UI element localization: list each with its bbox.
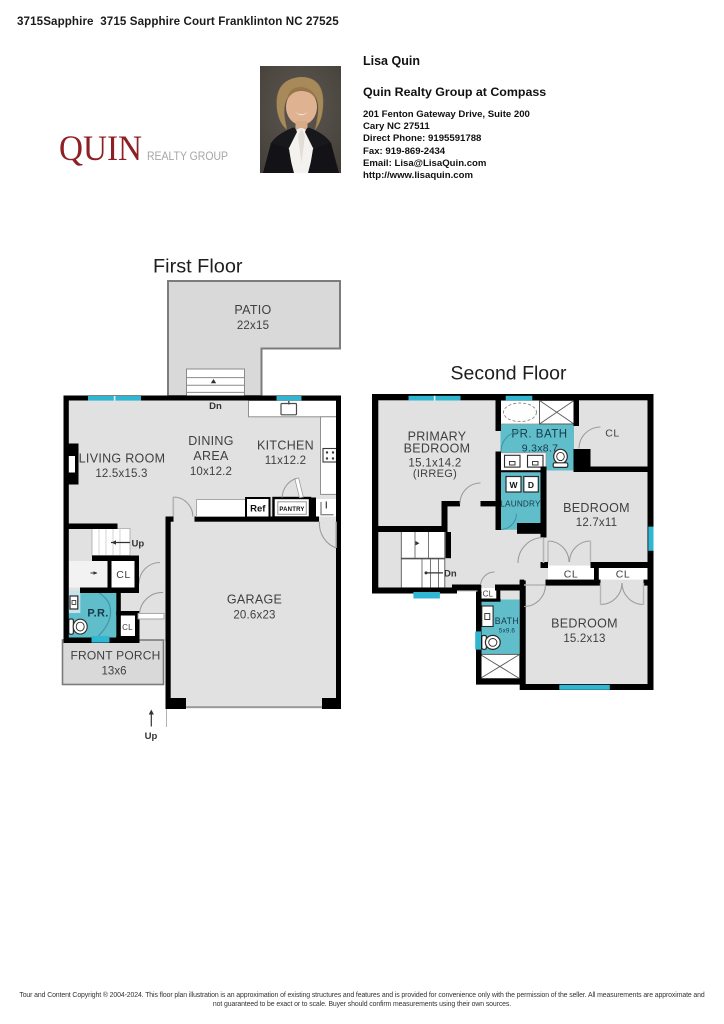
svg-text:BEDROOM: BEDROOM xyxy=(404,442,471,456)
svg-text:First Floor: First Floor xyxy=(153,256,243,278)
svg-text:20.6x23: 20.6x23 xyxy=(233,610,275,622)
svg-text:11x12.2: 11x12.2 xyxy=(265,455,306,467)
svg-text:W: W xyxy=(509,480,518,490)
svg-text:12.5x15.3: 12.5x15.3 xyxy=(95,468,147,480)
svg-text:LAUNDRY: LAUNDRY xyxy=(500,500,541,509)
svg-text:P.R.: P.R. xyxy=(87,608,108,620)
svg-text:LIVING ROOM: LIVING ROOM xyxy=(79,452,166,466)
svg-text:BEDROOM: BEDROOM xyxy=(563,501,630,515)
svg-text:CL: CL xyxy=(564,569,578,581)
svg-text:12.7x11: 12.7x11 xyxy=(576,517,617,529)
svg-text:Up: Up xyxy=(132,539,145,550)
svg-text:Dn: Dn xyxy=(209,401,222,412)
svg-text:GARAGE: GARAGE xyxy=(227,593,282,607)
svg-text:22x15: 22x15 xyxy=(237,320,269,332)
svg-text:10x12.2: 10x12.2 xyxy=(190,466,232,478)
svg-text:PANTRY: PANTRY xyxy=(279,507,304,513)
svg-text:BEDROOM: BEDROOM xyxy=(551,617,618,631)
svg-text:Second Floor: Second Floor xyxy=(451,363,568,385)
svg-text:AREA: AREA xyxy=(193,449,229,463)
svg-text:PR. BATH: PR. BATH xyxy=(511,429,567,441)
svg-text:KITCHEN: KITCHEN xyxy=(257,439,314,453)
svg-text:DINING: DINING xyxy=(188,434,234,448)
svg-text:PATIO: PATIO xyxy=(234,303,271,317)
svg-text:Dn: Dn xyxy=(444,569,457,580)
svg-text:13x6: 13x6 xyxy=(102,666,127,678)
svg-text:CL: CL xyxy=(116,569,130,581)
svg-text:FRONT PORCH: FRONT PORCH xyxy=(71,649,161,663)
svg-text:Up: Up xyxy=(145,731,158,742)
svg-text:(IRREG): (IRREG) xyxy=(413,468,457,480)
svg-text:5x9.6: 5x9.6 xyxy=(499,628,515,635)
svg-text:CL: CL xyxy=(122,623,133,632)
svg-text:D: D xyxy=(528,480,534,490)
svg-text:CL: CL xyxy=(483,589,494,598)
svg-text:CL: CL xyxy=(605,428,619,440)
svg-text:Ref: Ref xyxy=(250,504,266,515)
svg-text:15.2x13: 15.2x13 xyxy=(563,633,605,645)
svg-text:CL: CL xyxy=(616,569,630,581)
svg-text:BATH: BATH xyxy=(495,616,519,626)
